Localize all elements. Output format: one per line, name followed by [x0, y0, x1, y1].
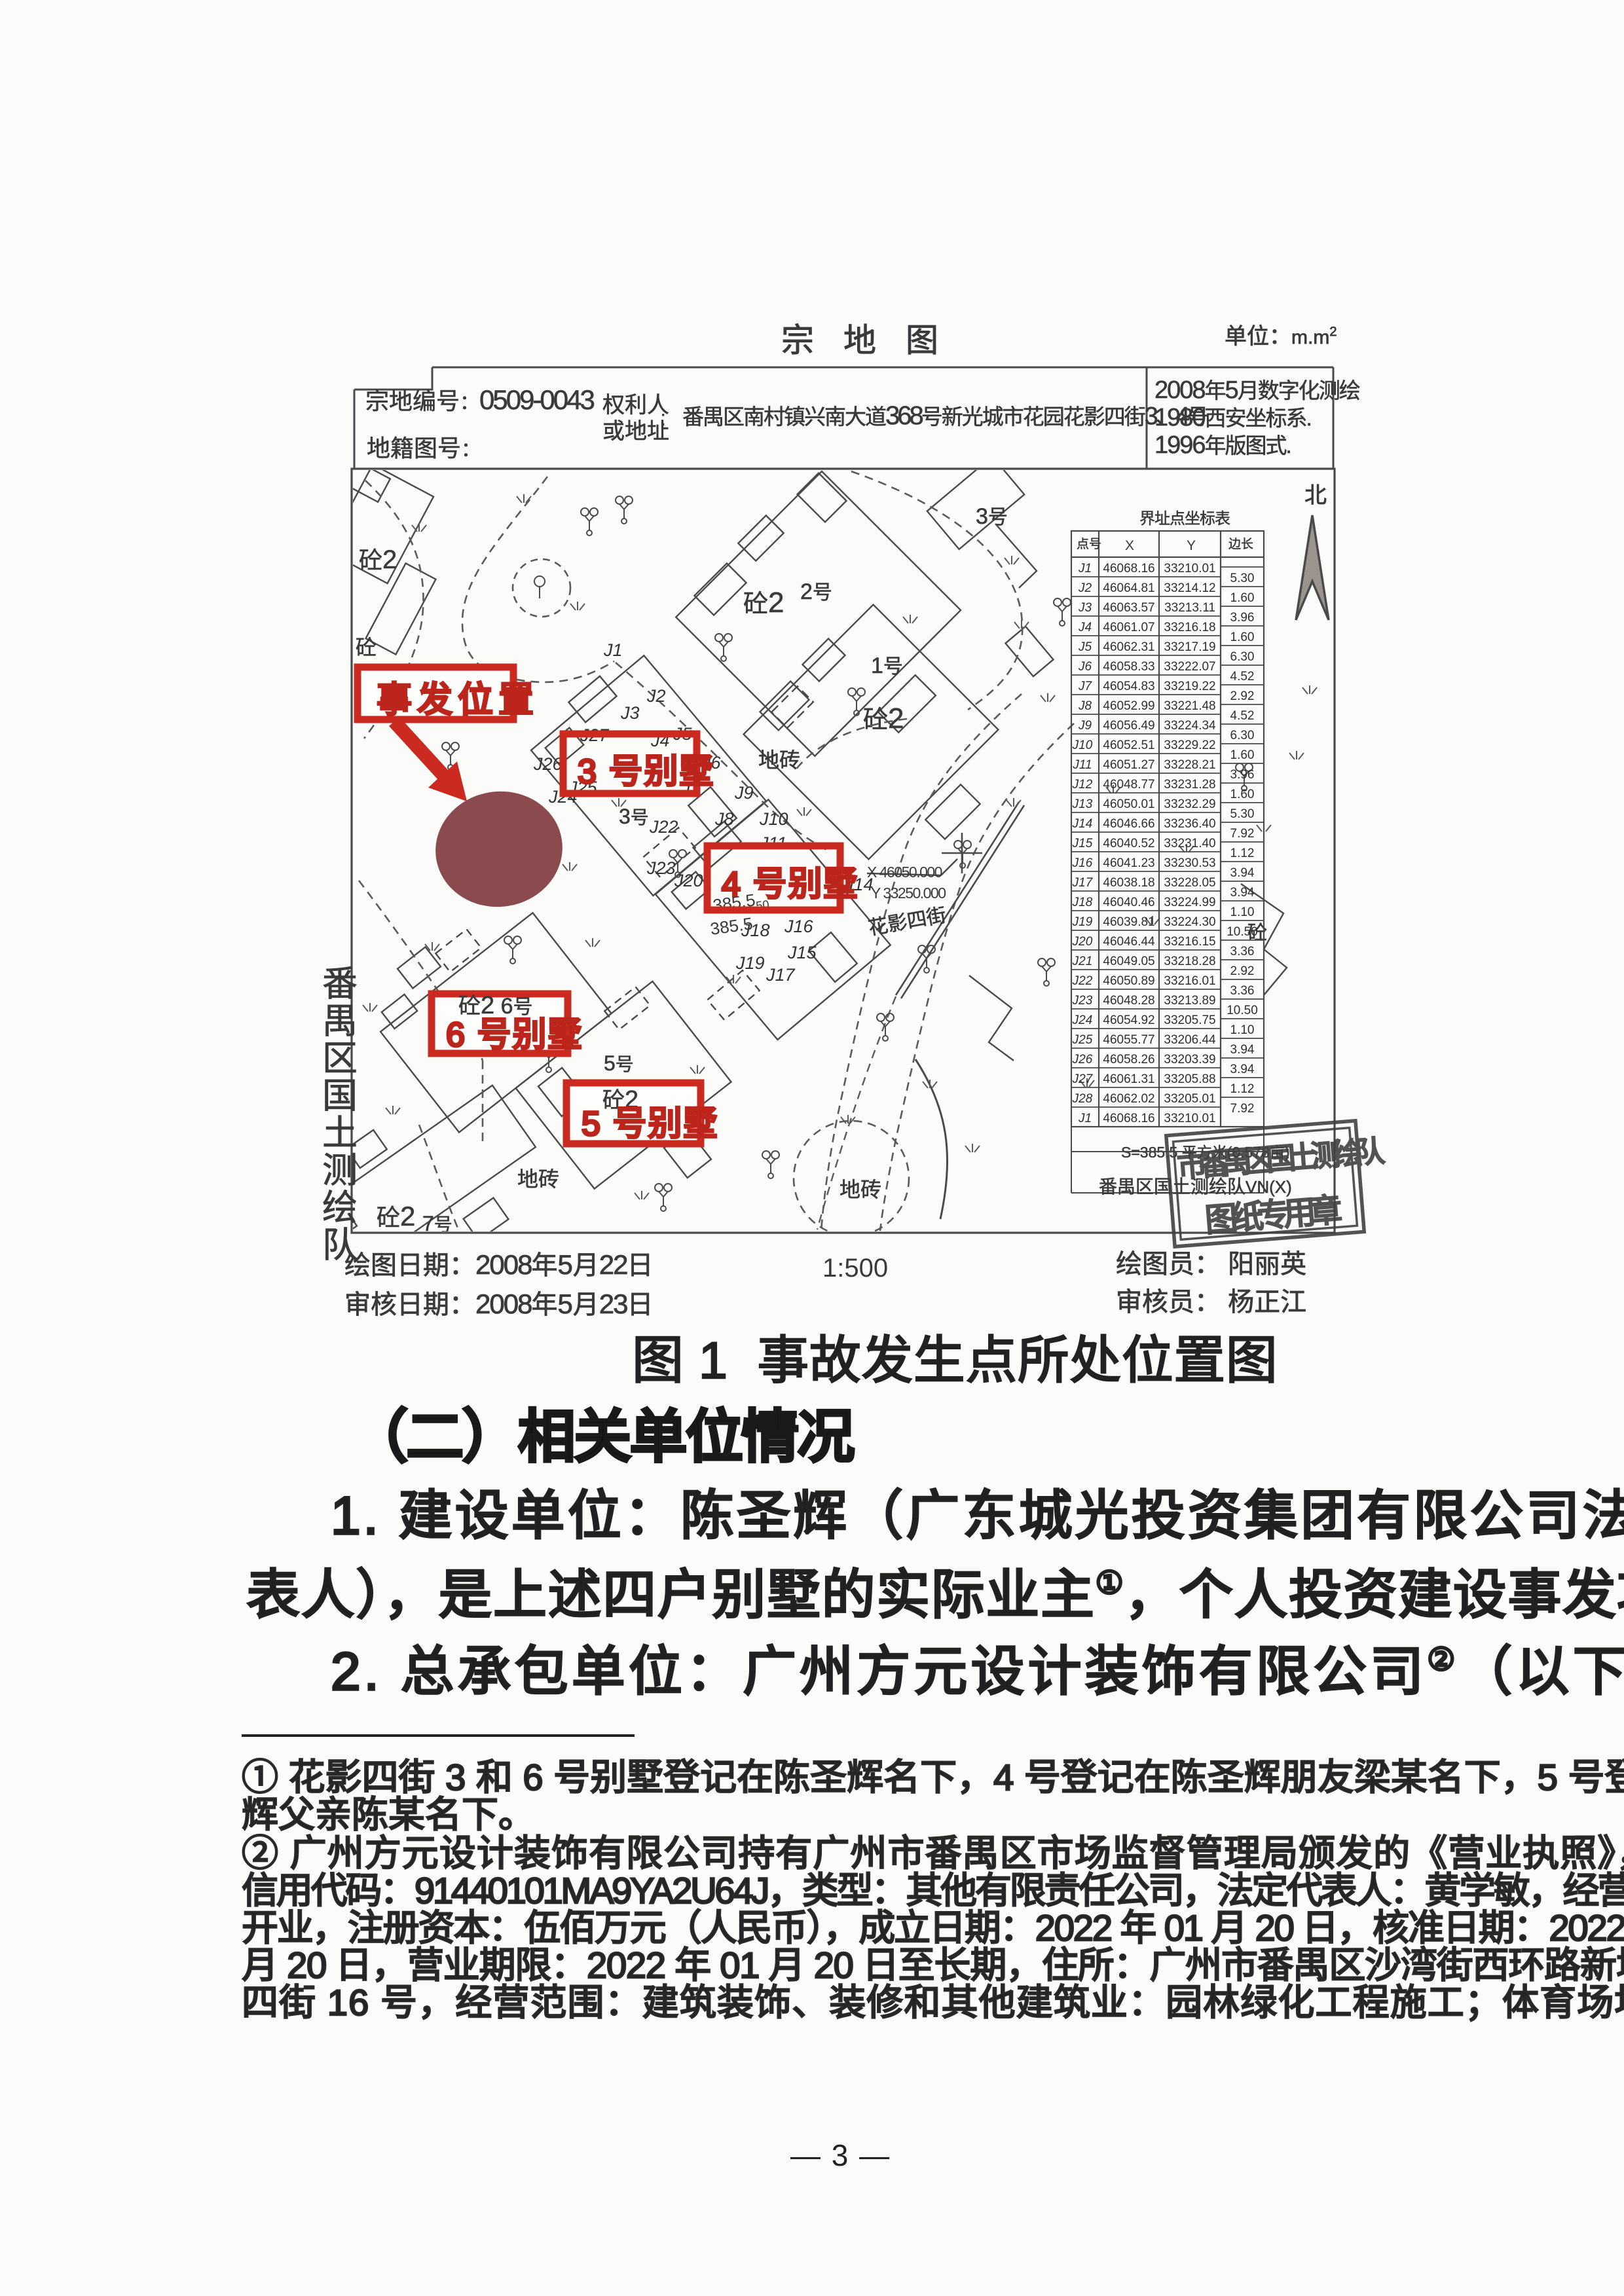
svg-text:46054.92: 46054.92	[1103, 1013, 1154, 1027]
svg-text:砼2 6号: 砼2 6号	[458, 992, 533, 1019]
svg-text::: :	[660, 406, 666, 431]
svg-text:J20: J20	[1072, 935, 1093, 949]
svg-text:3 号别墅: 3 号别墅	[578, 753, 714, 791]
svg-text:33218.28: 33218.28	[1164, 955, 1215, 968]
svg-text:46052.99: 46052.99	[1103, 699, 1154, 713]
svg-text:地砖: 地砖	[517, 1167, 559, 1191]
svg-text:J17: J17	[1072, 876, 1094, 890]
svg-text:J13: J13	[1072, 797, 1093, 811]
svg-text:J9: J9	[734, 783, 754, 803]
svg-text:33228.21: 33228.21	[1164, 758, 1215, 772]
svg-text:33205.01: 33205.01	[1164, 1092, 1215, 1106]
svg-text:33216.18: 33216.18	[1164, 621, 1215, 634]
svg-text:46061.07: 46061.07	[1103, 621, 1154, 634]
svg-text:J1: J1	[1078, 562, 1092, 575]
svg-text:1.60: 1.60	[1230, 748, 1255, 762]
svg-text:番: 番	[322, 964, 358, 1004]
svg-text:1.10: 1.10	[1230, 1023, 1255, 1037]
svg-text:X: X	[1125, 538, 1134, 553]
svg-text:33232.29: 33232.29	[1164, 797, 1215, 811]
svg-text:J24: J24	[1072, 1013, 1093, 1027]
svg-text:5.30: 5.30	[1230, 807, 1255, 821]
svg-text:33216.15: 33216.15	[1164, 935, 1215, 949]
svg-text:3.96: 3.96	[1230, 768, 1255, 782]
svg-text:33203.39: 33203.39	[1164, 1053, 1215, 1066]
svg-text:J27: J27	[1072, 1072, 1094, 1086]
svg-text:J1: J1	[1078, 1112, 1092, 1125]
svg-text:46051.27: 46051.27	[1103, 758, 1154, 772]
svg-text:46041.23: 46041.23	[1103, 856, 1154, 870]
svg-text:1.12: 1.12	[1230, 1082, 1255, 1096]
svg-text:J21: J21	[1072, 955, 1093, 968]
svg-text:6.30: 6.30	[1230, 650, 1255, 664]
svg-text:权利人: 权利人	[602, 393, 669, 418]
svg-text:4.52: 4.52	[1230, 709, 1255, 723]
svg-text:J16: J16	[1072, 856, 1093, 870]
svg-text:土: 土	[322, 1114, 358, 1153]
svg-text:33217.19: 33217.19	[1164, 640, 1215, 654]
svg-text:1.10: 1.10	[1230, 905, 1255, 919]
svg-text:J25: J25	[1072, 1033, 1093, 1047]
svg-text:33210.01: 33210.01	[1164, 1112, 1215, 1125]
svg-text:或地址: 或地址	[602, 419, 669, 444]
svg-text:J16: J16	[784, 917, 814, 936]
svg-text:J19: J19	[1072, 915, 1093, 929]
svg-text:绘: 绘	[322, 1188, 358, 1228]
svg-text:3.94: 3.94	[1230, 886, 1255, 900]
svg-text:46040.52: 46040.52	[1103, 837, 1154, 850]
svg-text:J23: J23	[1072, 994, 1093, 1008]
svg-text:33229.22: 33229.22	[1164, 738, 1215, 752]
svg-text:Y 33250.000: Y 33250.000	[871, 884, 946, 902]
svg-text:33224.34: 33224.34	[1164, 719, 1216, 733]
svg-text:4 号别墅: 4 号别墅	[722, 866, 858, 903]
svg-text:1.60: 1.60	[1230, 788, 1255, 801]
svg-text:33231.40: 33231.40	[1164, 837, 1215, 850]
svg-text:Y: Y	[1187, 538, 1196, 553]
svg-text:2008年5月数字化测绘: 2008年5月数字化测绘	[1154, 376, 1360, 404]
svg-text:边长: 边长	[1228, 537, 1253, 551]
svg-text:J22: J22	[649, 817, 678, 837]
svg-text:砼2: 砼2	[863, 702, 904, 735]
svg-text:46068.16: 46068.16	[1103, 1112, 1154, 1125]
svg-text:宗地编号：0509-0043: 宗地编号：0509-0043	[365, 384, 595, 415]
svg-text:1.12: 1.12	[1230, 847, 1255, 860]
svg-text:7.92: 7.92	[1230, 827, 1255, 841]
svg-text:46040.46: 46040.46	[1103, 896, 1154, 909]
svg-text:国: 国	[322, 1076, 358, 1116]
svg-text:46056.49: 46056.49	[1103, 719, 1154, 733]
svg-text:46038.18: 46038.18	[1103, 876, 1154, 890]
svg-text:46061.31: 46061.31	[1103, 1072, 1154, 1086]
svg-text:J9: J9	[1078, 719, 1092, 733]
svg-text:3.94: 3.94	[1230, 866, 1255, 880]
svg-text:1号: 1号	[871, 653, 903, 678]
svg-text:3.36: 3.36	[1230, 945, 1255, 958]
svg-text:J12: J12	[1072, 778, 1093, 792]
svg-text:33231.28: 33231.28	[1164, 778, 1215, 792]
svg-text:宗地图: 宗地图	[781, 322, 968, 359]
svg-text:J15: J15	[787, 943, 817, 962]
svg-text:J22: J22	[1072, 974, 1093, 988]
svg-text:砼2: 砼2	[359, 545, 397, 574]
svg-text:46063.57: 46063.57	[1103, 601, 1154, 615]
svg-text:J8: J8	[714, 809, 734, 829]
svg-text:10.50: 10.50	[1227, 1004, 1258, 1017]
svg-text:J3: J3	[620, 703, 640, 723]
svg-text:33216.01: 33216.01	[1164, 974, 1215, 988]
svg-text:J5: J5	[1078, 640, 1092, 654]
svg-text:33213.89: 33213.89	[1164, 994, 1215, 1008]
svg-text:33210.01: 33210.01	[1164, 562, 1215, 575]
svg-text:2.92: 2.92	[1230, 964, 1255, 978]
svg-text:J26: J26	[533, 754, 563, 774]
svg-text:5.30: 5.30	[1230, 572, 1255, 585]
svg-text:33224.30: 33224.30	[1164, 915, 1215, 929]
svg-text:队: 队	[322, 1226, 358, 1265]
svg-text:33224.99: 33224.99	[1164, 896, 1215, 909]
svg-text:5 号别墅: 5 号别墅	[581, 1105, 718, 1143]
svg-text:6 号别墅: 6 号别墅	[446, 1016, 583, 1054]
svg-text:北: 北	[1304, 483, 1327, 508]
svg-text:J23: J23	[646, 858, 676, 878]
svg-text:33219.22: 33219.22	[1164, 680, 1215, 693]
svg-text:单位：m.m2: 单位：m.m2	[1225, 324, 1337, 349]
svg-text:J19: J19	[735, 953, 765, 973]
svg-text:46050.89: 46050.89	[1103, 974, 1154, 988]
svg-text:J14: J14	[1072, 817, 1093, 831]
svg-text:绘图员： 阳丽英: 绘图员： 阳丽英	[1116, 1250, 1306, 1279]
svg-text:J26: J26	[1072, 1053, 1093, 1066]
svg-text:46048.77: 46048.77	[1103, 778, 1154, 792]
svg-text:46050.01: 46050.01	[1103, 797, 1154, 811]
svg-text:46062.31: 46062.31	[1103, 640, 1154, 654]
svg-text:事发位置: 事发位置	[377, 680, 539, 720]
svg-text:地籍图号：: 地籍图号：	[367, 435, 481, 462]
svg-text:33236.40: 33236.40	[1164, 817, 1215, 831]
svg-text:6.30: 6.30	[1230, 729, 1255, 742]
svg-text:砼2: 砼2	[743, 587, 784, 619]
svg-text:J15: J15	[1072, 837, 1093, 850]
svg-text:J10: J10	[759, 809, 788, 829]
svg-text:3.96: 3.96	[1230, 611, 1255, 625]
svg-text:5号: 5号	[604, 1051, 634, 1075]
svg-text:3号: 3号	[619, 805, 649, 828]
svg-text:砼2: 砼2	[377, 1201, 415, 1231]
svg-text:番禺区南村镇兴南大道368号新光城市花园花影四街3、4号: 番禺区南村镇兴南大道368号新光城市花园花影四街3、4号	[682, 401, 1208, 430]
svg-text:46049.05: 46049.05	[1103, 955, 1154, 968]
svg-text:46039.81: 46039.81	[1103, 915, 1154, 929]
svg-text:J6: J6	[1078, 660, 1092, 674]
svg-text:J11: J11	[1072, 758, 1092, 772]
svg-text:绘图日期：2008年5月22日: 绘图日期：2008年5月22日	[344, 1249, 654, 1280]
svg-text:3号: 3号	[976, 504, 1008, 529]
svg-text:审核日期：2008年5月23日: 审核日期：2008年5月23日	[344, 1288, 654, 1319]
svg-text:地砖: 地砖	[840, 1178, 881, 1201]
svg-text:33206.44: 33206.44	[1164, 1033, 1216, 1047]
svg-text:J2: J2	[1078, 581, 1092, 595]
svg-text:3.94: 3.94	[1230, 1043, 1255, 1057]
svg-text:J10: J10	[1072, 738, 1093, 752]
svg-text:33213.11: 33213.11	[1164, 601, 1215, 615]
svg-text:J4: J4	[1078, 621, 1092, 634]
svg-text:2.92: 2.92	[1230, 689, 1255, 703]
svg-text:46055.77: 46055.77	[1103, 1033, 1154, 1047]
svg-text:33228.05: 33228.05	[1164, 876, 1215, 890]
svg-text:J7: J7	[1078, 680, 1093, 693]
svg-text:界址点坐标表: 界址点坐标表	[1139, 510, 1230, 528]
svg-text:2号: 2号	[800, 579, 832, 604]
svg-text:1:500: 1:500	[822, 1254, 888, 1283]
svg-text:禺: 禺	[322, 1002, 358, 1041]
svg-text:33205.75: 33205.75	[1164, 1013, 1215, 1027]
svg-text:10.50: 10.50	[1227, 925, 1258, 939]
svg-text:审核员： 杨正江: 审核员： 杨正江	[1116, 1288, 1306, 1317]
svg-text:46052.51: 46052.51	[1103, 738, 1154, 752]
svg-text:J8: J8	[1078, 699, 1092, 713]
svg-text:33222.07: 33222.07	[1164, 660, 1215, 674]
svg-text:X 46050.000: X 46050.000	[867, 864, 942, 881]
svg-text:点号: 点号	[1077, 537, 1101, 551]
svg-text:46064.81: 46064.81	[1103, 581, 1154, 595]
svg-text:46046.44: 46046.44	[1103, 935, 1155, 949]
svg-text:J20: J20	[674, 871, 703, 890]
svg-text:46046.66: 46046.66	[1103, 817, 1154, 831]
svg-text:J1: J1	[603, 640, 623, 660]
svg-text:1980西安坐标系.: 1980西安坐标系.	[1154, 404, 1311, 431]
svg-text:46068.16: 46068.16	[1103, 562, 1154, 575]
svg-text:地砖: 地砖	[758, 748, 800, 772]
svg-text:46058.33: 46058.33	[1103, 660, 1154, 674]
svg-text:46058.26: 46058.26	[1103, 1053, 1154, 1066]
svg-text:46048.28: 46048.28	[1103, 994, 1154, 1008]
svg-text:33205.88: 33205.88	[1164, 1072, 1215, 1086]
svg-text:33214.12: 33214.12	[1164, 581, 1215, 595]
svg-text:4.52: 4.52	[1230, 670, 1255, 683]
svg-text:7.92: 7.92	[1230, 1102, 1255, 1116]
svg-text:1.60: 1.60	[1230, 630, 1255, 644]
svg-text:区: 区	[322, 1039, 358, 1078]
svg-text:3.94: 3.94	[1230, 1063, 1255, 1076]
svg-text:砼: 砼	[356, 636, 377, 659]
svg-text:33230.53: 33230.53	[1164, 856, 1215, 870]
svg-text:J3: J3	[1078, 601, 1092, 615]
svg-text:1.60: 1.60	[1230, 591, 1255, 605]
svg-text:测: 测	[322, 1151, 358, 1190]
svg-text:J18: J18	[1072, 896, 1093, 909]
svg-text:J2: J2	[646, 686, 666, 706]
svg-text:1996年版图式.: 1996年版图式.	[1154, 431, 1291, 459]
svg-text:3.36: 3.36	[1230, 984, 1255, 998]
svg-text:46062.02: 46062.02	[1103, 1092, 1154, 1106]
svg-text:33221.48: 33221.48	[1164, 699, 1215, 713]
svg-text:J17: J17	[766, 965, 796, 985]
svg-text:J28: J28	[1072, 1092, 1093, 1106]
svg-text:46054.83: 46054.83	[1103, 680, 1154, 693]
